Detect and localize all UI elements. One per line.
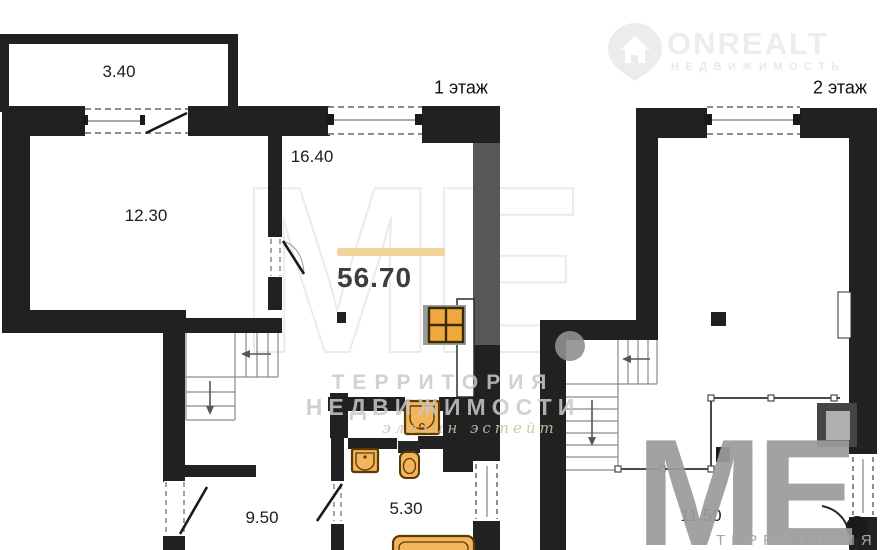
wall bbox=[2, 34, 238, 44]
onrealt-logo-title: ONREALT bbox=[667, 26, 829, 62]
fireplace-icon bbox=[817, 403, 857, 447]
wall bbox=[188, 106, 330, 136]
center-watermark-line1: ТЕРРИТОРИЯ bbox=[332, 371, 555, 395]
wall bbox=[163, 536, 185, 550]
wall bbox=[163, 323, 185, 482]
total-area-accent-bar bbox=[337, 248, 445, 256]
wall bbox=[636, 108, 658, 340]
wall bbox=[348, 438, 397, 449]
wall bbox=[331, 438, 344, 481]
wall-niche bbox=[838, 292, 851, 338]
wall bbox=[228, 34, 238, 112]
walls-floor1 bbox=[0, 34, 500, 550]
center-watermark-script: элохин эстейт bbox=[382, 419, 558, 437]
column bbox=[711, 312, 726, 326]
wall bbox=[268, 136, 282, 237]
wall bbox=[2, 106, 30, 333]
total-area-label: 56.70 bbox=[337, 262, 412, 294]
wall bbox=[473, 143, 500, 345]
wall bbox=[418, 436, 443, 449]
bathroom-window bbox=[473, 461, 500, 521]
plan-linework bbox=[0, 0, 880, 550]
wall bbox=[268, 277, 282, 310]
corner-watermark-caption: ТЕРРИТОРИЯ bbox=[716, 532, 878, 549]
walls-floor2 bbox=[540, 108, 877, 550]
wall bbox=[2, 310, 186, 333]
balcony-window bbox=[82, 107, 188, 135]
bathtub-icon bbox=[393, 536, 474, 550]
wall bbox=[422, 106, 500, 143]
floor2-right-window bbox=[849, 454, 877, 517]
center-watermark-line2: НЕДВИЖИМОСТИ bbox=[306, 394, 580, 421]
stove-icon bbox=[423, 305, 466, 345]
wall bbox=[185, 318, 282, 333]
wall bbox=[849, 108, 877, 292]
bathroom-door bbox=[317, 483, 343, 523]
stairs-floor1-arrows bbox=[206, 350, 271, 415]
toilet-icon bbox=[398, 441, 420, 478]
floor2-top-window bbox=[704, 107, 801, 135]
room-door bbox=[269, 238, 304, 276]
stairs-floor1 bbox=[186, 333, 278, 420]
railing-post bbox=[716, 447, 730, 462]
wall bbox=[168, 465, 256, 477]
wall bbox=[331, 524, 344, 550]
stairs-floor2-arrows bbox=[588, 355, 650, 446]
hall-door bbox=[164, 481, 207, 536]
wall bbox=[473, 521, 500, 550]
washbasin-icon bbox=[352, 449, 378, 472]
floor-plan-image: МЕ bbox=[0, 0, 880, 550]
onrealt-logo-subtitle: НЕДВИЖИМОСТЬ bbox=[671, 61, 846, 73]
stair-railing bbox=[615, 395, 840, 472]
center-watermark-dot bbox=[555, 331, 585, 361]
wall bbox=[0, 34, 9, 112]
column bbox=[337, 312, 346, 323]
floor1-top-window bbox=[326, 107, 423, 135]
